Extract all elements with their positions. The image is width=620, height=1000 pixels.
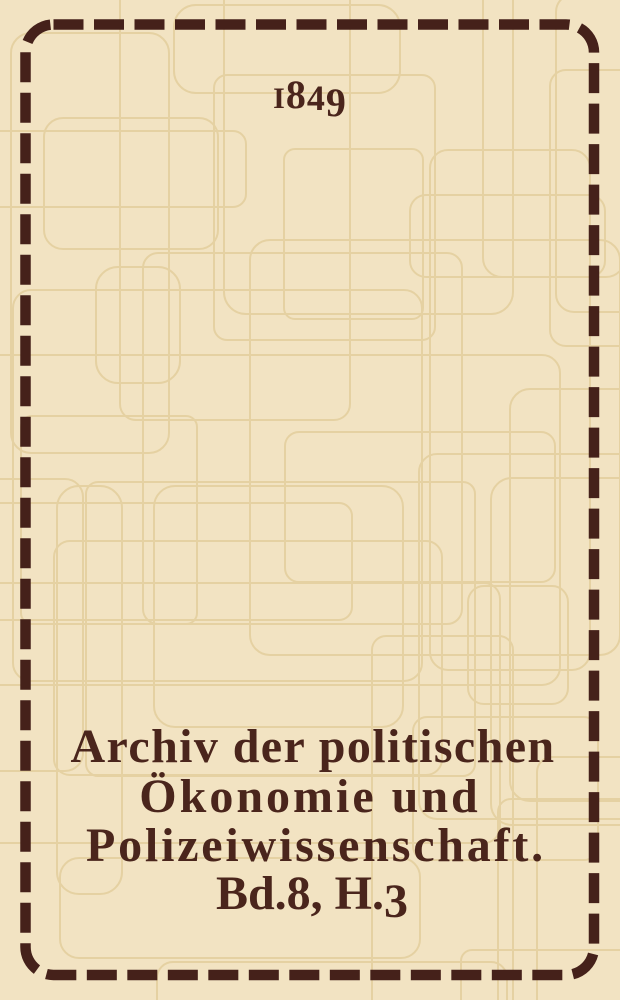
svg-text:Polizeiwissenschaft.: Polizeiwissenschaft. bbox=[86, 819, 546, 872]
svg-text:Archiv der politischen: Archiv der politischen bbox=[70, 720, 555, 773]
svg-text:Ökonomie und: Ökonomie und bbox=[139, 770, 480, 823]
svg-text:Bd.8, H.3: Bd.8, H.3 bbox=[216, 867, 408, 928]
